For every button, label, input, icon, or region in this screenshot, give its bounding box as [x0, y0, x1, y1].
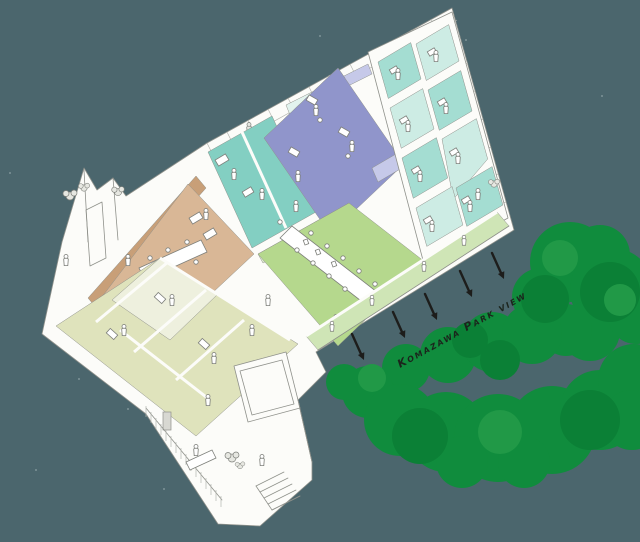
entrance-door: [163, 412, 171, 430]
axonometric-floor-plan: Komazawa Park view: [0, 0, 640, 542]
terrace-tower: [86, 202, 106, 266]
illustration-canvas: Komazawa Park view: [0, 0, 640, 542]
